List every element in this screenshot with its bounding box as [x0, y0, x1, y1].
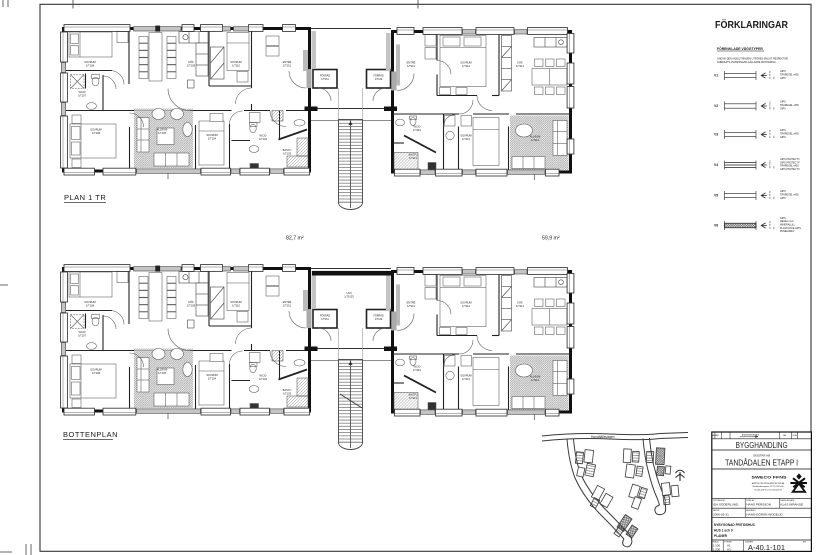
svg-text:1/T116: 1/T116 — [413, 128, 421, 132]
svg-text:SWECO FFNS: SWECO FFNS — [752, 475, 787, 480]
svg-text:HV3: HV3 — [346, 291, 352, 295]
svg-text:GIPS: GIPS — [780, 197, 786, 200]
svg-text:BASTU: BASTU — [409, 153, 418, 157]
svg-text:WC/D: WC/D — [414, 125, 421, 129]
svg-text:BASTU: BASTU — [283, 148, 292, 152]
svg-text:FÖRENKLADE VÄGGTYPER: FÖRENKLADE VÄGGTYPER — [717, 46, 763, 51]
svg-text:1/T103: 1/T103 — [283, 152, 292, 156]
svg-text:1/T108: 1/T108 — [86, 64, 95, 68]
svg-text:SKISTAR AB: SKISTAR AB — [753, 454, 770, 458]
svg-text:Tel 023-456 90 v Fax 023-456 9: Tel 023-456 90 v Fax 023-456 91 — [754, 489, 782, 491]
svg-text:WC/D: WC/D — [260, 134, 267, 138]
svg-text:1/T131: 1/T131 — [321, 78, 329, 81]
svg-text:1/T107: 1/T107 — [78, 94, 87, 98]
svg-text:SOVRUM: SOVRUM — [460, 61, 471, 65]
svg-text:ALLRUM: ALLRUM — [530, 135, 541, 139]
svg-text:PLAN 1 TR: PLAN 1 TR — [64, 193, 106, 202]
svg-text:13 70 13: 13 70 13 — [770, 129, 772, 138]
svg-text:GIPS: GIPS — [780, 136, 786, 139]
svg-text:FABRIKATS ANVISNINGAR GÄLLANDE: FABRIKATS ANVISNINGAR GÄLLANDE MONTERING — [717, 61, 776, 64]
svg-text:1/T102: 1/T102 — [259, 137, 268, 141]
svg-text:1/T109: 1/T109 — [187, 64, 196, 68]
svg-text:A3: A3 — [727, 547, 731, 551]
svg-text:SOVRUM: SOVRUM — [230, 60, 241, 64]
svg-text:V1: V1 — [714, 74, 718, 78]
svg-text:13 70 13: 13 70 13 — [770, 70, 772, 79]
svg-text:13 70 13: 13 70 13 — [770, 190, 772, 199]
svg-text:1/T104: 1/T104 — [208, 137, 217, 141]
svg-text:FÖRKLARINGAR: FÖRKLARINGAR — [715, 18, 788, 31]
svg-text:HANS-GÖRAN WODELID: HANS-GÖRAN WODELID — [746, 512, 783, 516]
svg-text:BOTTENPLAN: BOTTENPLAN — [63, 430, 118, 439]
svg-text:ARKITEKTER FFNS ARKITEKTER AB: ARKITEKTER FFNS ARKITEKTER AB — [752, 482, 785, 485]
svg-text:1/T112: 1/T112 — [462, 64, 470, 68]
svg-text:KÖK: KÖK — [517, 61, 523, 65]
svg-text:82,7 m²: 82,7 m² — [286, 236, 304, 242]
svg-text:1:200: 1:200 — [713, 547, 721, 551]
svg-text:1/T111: 1/T111 — [407, 64, 415, 68]
svg-text:V6: V6 — [714, 224, 718, 228]
svg-text:1/T115: 1/T115 — [462, 137, 470, 141]
svg-text:1/T1023: 1/T1023 — [344, 295, 354, 299]
svg-text:13 70 13: 13 70 13 — [770, 160, 772, 169]
svg-text:NYBYGGNAD FRITIDSHUS: NYBYGGNAD FRITIDSHUS — [714, 523, 755, 527]
svg-text:HANS PERSSON: HANS PERSSON — [746, 503, 771, 507]
svg-text:TANDÅDALEN ETAPP I: TANDÅDALEN ETAPP I — [725, 459, 798, 468]
svg-text:HUS 1 och 9: HUS 1 och 9 — [714, 529, 733, 533]
svg-text:1/T132: 1/T132 — [375, 78, 383, 81]
svg-text:ALLRUM: ALLRUM — [157, 128, 168, 132]
svg-text:Hundfjällsvägen: Hundfjällsvägen — [591, 435, 615, 439]
svg-text:13 70 13: 13 70 13 — [770, 220, 772, 229]
svg-text:V4: V4 — [714, 163, 718, 167]
svg-text:1/T117: 1/T117 — [409, 156, 417, 160]
svg-text:PLANER: PLANER — [714, 534, 728, 538]
svg-text:BYGGHANDLING: BYGGHANDLING — [736, 440, 788, 450]
svg-text:SOVRUM: SOVRUM — [206, 133, 217, 137]
svg-text:PANELDREV: PANELDREV — [780, 230, 795, 233]
svg-text:V2: V2 — [714, 104, 718, 108]
svg-text:13 70 13: 13 70 13 — [770, 101, 772, 110]
svg-text:1/T106: 1/T106 — [92, 131, 101, 135]
svg-text:1/T114: 1/T114 — [531, 138, 539, 142]
svg-text:1/T113: 1/T113 — [516, 64, 524, 68]
svg-text:A-40.1-101: A-40.1-101 — [748, 543, 785, 552]
svg-text:IDA SÖDERLUND: IDA SÖDERLUND — [713, 503, 739, 507]
svg-text:KLAS WRANGE: KLAS WRANGE — [781, 503, 804, 507]
svg-text:SOVRUM: SOVRUM — [460, 134, 471, 138]
svg-text:1/T110: 1/T110 — [232, 64, 240, 68]
svg-text:ÄNDRINGEN AVSER: ÄNDRINGEN AVSER — [742, 433, 760, 436]
svg-text:V5: V5 — [714, 194, 718, 198]
svg-text:59,9 m²: 59,9 m² — [542, 236, 560, 242]
svg-text:GIPS: GIPS — [780, 77, 786, 80]
svg-text:WC/D: WC/D — [79, 90, 86, 94]
svg-text:KÖK: KÖK — [188, 60, 194, 64]
svg-text:GIPS: GIPS — [780, 107, 786, 110]
svg-text:1/T101: 1/T101 — [283, 64, 292, 68]
svg-text:2006-03-31: 2006-03-31 — [713, 512, 729, 516]
svg-text:SOVRUM: SOVRUM — [84, 60, 95, 64]
svg-text:SIGN: SIGN — [793, 435, 798, 437]
svg-text:GIPS PROTECT F: GIPS PROTECT F — [780, 168, 800, 171]
svg-text:Besöksadressgatan 21 791 70 Fa: Besöksadressgatan 21 791 70 Falun — [753, 485, 784, 488]
svg-text:V3: V3 — [714, 133, 718, 137]
svg-text:1/T105: 1/T105 — [158, 131, 167, 135]
svg-text:SOVRUM: SOVRUM — [90, 128, 101, 132]
